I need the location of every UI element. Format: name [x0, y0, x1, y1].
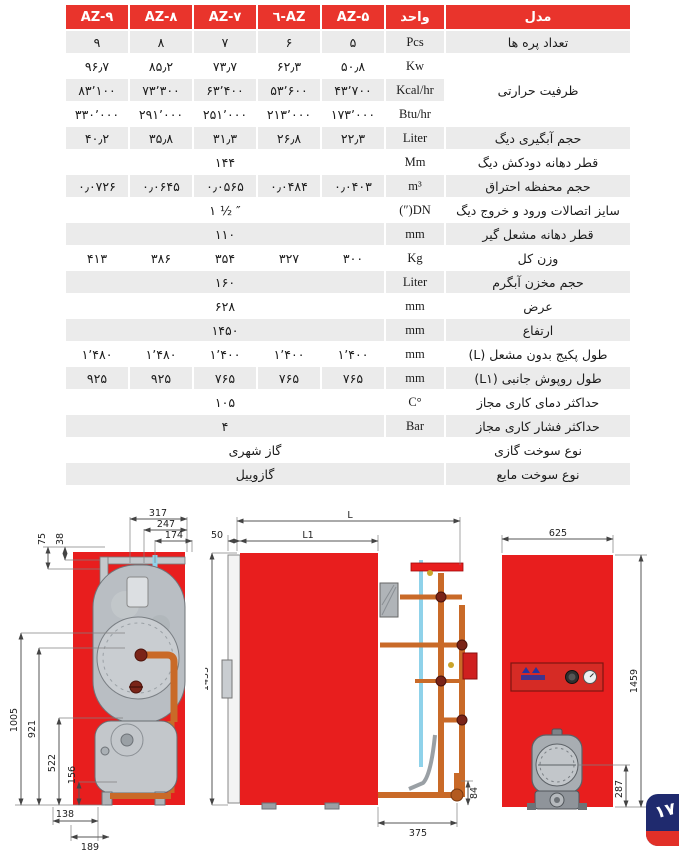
unit-cell: m³ [386, 175, 444, 197]
row-label: تعداد پره ها [446, 31, 630, 53]
dim-label-75: 75 [37, 533, 48, 545]
value-cell: ۷۶۵ [194, 367, 256, 389]
row-fins: تعداد پره ها Pcs ۵ ۶ ۷ ۸ ۹ [66, 31, 630, 53]
unit-cell: Mm [386, 151, 444, 173]
side-tab [222, 660, 232, 698]
unit-cell: Kg [386, 247, 444, 269]
value-cell: ۶ [258, 31, 320, 53]
header-az9: AZ-۹ [66, 5, 128, 29]
unit-cell: mm [386, 343, 444, 365]
row-label: وزن کل [446, 247, 630, 269]
value-cell: ۱٬۴۰۰ [258, 343, 320, 365]
value-cell: ۳۲۷ [258, 247, 320, 269]
value-cell: ۰٫۰۵۶۵ [194, 175, 256, 197]
dim-label-L1: L1 [302, 530, 313, 541]
value-cell: ۰٫۰۶۴۵ [130, 175, 192, 197]
dim-label-156: 156 [67, 766, 78, 784]
dim-label-1459: 1459 [629, 669, 640, 693]
dim-label-375: 375 [409, 828, 427, 839]
merged-value-cell: ۱۴۴ [66, 151, 384, 173]
merged-value-cell: ۴ [66, 415, 384, 437]
row-kw: ظرفیت حرارتی Kw ۵۰٫۸ ۶۲٫۳ ۷۳٫۷ ۸۵٫۲ ۹۶٫۷ [66, 55, 630, 77]
row-label: حداکثر فشار کاری مجاز [446, 415, 630, 437]
value-cell: ۹۲۵ [130, 367, 192, 389]
unit-cell: mm [386, 319, 444, 341]
value-cell: ۱٬۴۰۰ [322, 343, 384, 365]
row-tank-volume: حجم مخزن آبگرم Liter ۱۶۰ [66, 271, 630, 293]
dim-label-921: 921 [27, 720, 38, 738]
value-cell: ۳۰۰ [322, 247, 384, 269]
unit-cell: mm [386, 223, 444, 245]
dim-label-625: 625 [549, 528, 567, 539]
unit-cell: Btu/hr [386, 103, 444, 125]
red-jacket-side [240, 553, 378, 805]
value-cell: ۱۷۳٬۰۰۰ [322, 103, 384, 125]
header-az5: AZ-۵ [322, 5, 384, 29]
value-cell: ۸ [130, 31, 192, 53]
valve [436, 592, 446, 602]
value-cell: ۲۲٫۳ [322, 127, 384, 149]
row-chamber: حجم محفظه احتراق m³ ۰٫۰۴۰۳ ۰٫۰۴۸۴ ۰٫۰۵۶۵… [66, 175, 630, 197]
row-height: ارتفاع mm ۱۴۵۰ [66, 319, 630, 341]
value-cell: ۹ [66, 31, 128, 53]
row-water-volume: حجم آبگیری دیگ Liter ۲۲٫۳ ۲۶٫۸ ۳۱٫۳ ۳۵٫۸… [66, 127, 630, 149]
merged-value-cell: ۱ ½ ″ [66, 199, 384, 221]
unit-cell: mm [386, 295, 444, 317]
row-max-pressure: حداکثر فشار کاری مجاز Bar ۴ [66, 415, 630, 437]
header-az8: AZ-۸ [130, 5, 192, 29]
row-burner-mount: قطر دهانه مشعل گیر mm ۱۱۰ [66, 223, 630, 245]
row-label: طول روپوش جانبی (L۱) [446, 367, 630, 389]
dim-label-38: 38 [55, 533, 66, 545]
value-cell: ۳۳۰٬۰۰۰ [66, 103, 128, 125]
row-liquid-fuel: نوع سوخت مایع گازوییل [66, 463, 630, 485]
value-cell: ۲۶٫۸ [258, 127, 320, 149]
valve [135, 649, 147, 661]
dim-label-247: 247 [157, 519, 175, 530]
row-label: طول پکیج بدون مشعل (L) [446, 343, 630, 365]
page-number-badge: ۱۷ [646, 794, 679, 846]
row-label: نوع سوخت گازی [446, 439, 630, 461]
unit-cell: Kw [386, 55, 444, 77]
burner-port-center [554, 797, 560, 803]
dim-label-50: 50 [211, 530, 223, 541]
dim-label-189: 189 [81, 842, 99, 851]
tank-label-plate [127, 577, 148, 607]
row-label: نوع سوخت مایع [446, 463, 630, 485]
unit-cell: DN(″) [386, 199, 444, 221]
red-top-pipe [411, 563, 463, 571]
header-unit: واحد [386, 5, 444, 29]
value-cell: ۷۳٫۷ [194, 55, 256, 77]
burner-foot [527, 803, 536, 810]
row-label: سایز اتصالات ورود و خروج دیگ [446, 199, 630, 221]
value-cell: ۷۳٬۳۰۰ [130, 79, 192, 101]
value-cell: ۶۲٫۳ [258, 55, 320, 77]
row-length-l1: طول روپوش جانبی (L۱) mm ۷۶۵ ۷۶۵ ۷۶۵ ۹۲۵ … [66, 367, 630, 389]
value-cell: ۵ [322, 31, 384, 53]
unit-cell: Liter [386, 127, 444, 149]
dim-label-L: L [347, 510, 353, 521]
value-cell: ۸۳٬۱۰۰ [66, 79, 128, 101]
merged-value-cell: ۱۰۵ [66, 391, 384, 413]
row-chimney: قطر دهانه دودکش دیگ Mm ۱۴۴ [66, 151, 630, 173]
row-label: عرض [446, 295, 630, 317]
header-row: مدل واحد AZ-۵ AZ-٦ AZ-۷ AZ-۸ AZ-۹ [66, 5, 630, 29]
unit-cell: Bar [386, 415, 444, 437]
row-label: حجم مخزن آبگرم [446, 271, 630, 293]
value-cell: ۱٬۴۸۰ [130, 343, 192, 365]
lower-tank-fitting [101, 747, 109, 755]
value-cell: ۳۵۴ [194, 247, 256, 269]
merged-value-cell: ۱۶۰ [66, 271, 384, 293]
burner-foot [578, 803, 587, 810]
dim-label-317: 317 [149, 508, 167, 519]
page-number: ۱۷ [653, 799, 678, 823]
unit-cell: Liter [386, 271, 444, 293]
dim-label-287: 287 [614, 780, 625, 798]
value-cell: ۷ [194, 31, 256, 53]
drawing-side-view: L L1 50 1433 375 84 [205, 505, 480, 851]
value-cell: ۷۶۵ [322, 367, 384, 389]
row-length-l: طول پکیج بدون مشعل (L) mm ۱٬۴۰۰ ۱٬۴۰۰ ۱٬… [66, 343, 630, 365]
unit-cell: Pcs [386, 31, 444, 53]
row-max-temp: حداکثر دمای کاری مجاز °C ۱۰۵ [66, 391, 630, 413]
row-label: قطر دهانه دودکش دیگ [446, 151, 630, 173]
unit-cell: mm [386, 367, 444, 389]
dim-label-1433: 1433 [205, 667, 211, 691]
value-cell: ۶۳٬۴۰۰ [194, 79, 256, 101]
header-az7: AZ-۷ [194, 5, 256, 29]
row-label-capacity: ظرفیت حرارتی [446, 55, 630, 125]
row-gas-fuel: نوع سوخت گازی گاز شهری [66, 439, 630, 461]
value-cell: ۱٬۴۰۰ [194, 343, 256, 365]
value-cell: ۴۰٫۲ [66, 127, 128, 149]
value-cell: ۴۱۳ [66, 247, 128, 269]
lower-tank-cap [121, 734, 133, 746]
dim-label-138: 138 [56, 809, 74, 820]
row-weight: وزن کل Kg ۳۰۰ ۳۲۷ ۳۵۴ ۳۸۶ ۴۱۳ [66, 247, 630, 269]
dim-label-522: 522 [47, 754, 58, 772]
value-cell: ۲۹۱٬۰۰۰ [130, 103, 192, 125]
unit-cell: °C [386, 391, 444, 413]
value-cell: ۰٫۰۴۰۳ [322, 175, 384, 197]
unit-cell: Kcal/hr [386, 79, 444, 101]
value-cell: ۳۵٫۸ [130, 127, 192, 149]
merged-value-cell: گازوییل [66, 463, 444, 485]
foot [325, 803, 339, 809]
value-cell: ۹۶٫۷ [66, 55, 128, 77]
pipe-elbow [451, 789, 463, 801]
header-az6: AZ-٦ [258, 5, 320, 29]
row-connections: سایز اتصالات ورود و خروج دیگ DN(″) ۱ ½ ″ [66, 199, 630, 221]
value-cell: ۰٫۰۴۸۴ [258, 175, 320, 197]
value-cell: ۳۸۶ [130, 247, 192, 269]
value-cell: ۲۵۱٬۰۰۰ [194, 103, 256, 125]
boiler-spec-table: مدل واحد AZ-۵ AZ-٦ AZ-۷ AZ-۸ AZ-۹ تعداد … [64, 3, 632, 487]
drawing-front-section: 317 247 174 75 38 1005 921 522 156 138 1… [5, 505, 230, 851]
merged-value-cell: ۱۴۵۰ [66, 319, 384, 341]
row-label: حداکثر دمای کاری مجاز [446, 391, 630, 413]
brass-fitting [448, 662, 454, 668]
row-label: ارتفاع [446, 319, 630, 341]
top-pipe [100, 557, 185, 564]
value-cell: ۴۳٬۷۰۰ [322, 79, 384, 101]
value-cell: ۱٬۴۸۰ [66, 343, 128, 365]
dim-label-1005: 1005 [9, 708, 20, 732]
value-cell: ۲۱۳٬۰۰۰ [258, 103, 320, 125]
valve [436, 676, 446, 686]
value-cell: ۵۳٬۶۰۰ [258, 79, 320, 101]
value-cell: ۸۵٫۲ [130, 55, 192, 77]
value-cell: ۷۶۵ [258, 367, 320, 389]
value-cell: ۰٫۰۷۲۶ [66, 175, 128, 197]
dim-label-174: 174 [165, 530, 183, 541]
value-cell: ۵۰٫۸ [322, 55, 384, 77]
merged-value-cell: گاز شهری [66, 439, 444, 461]
header-model: مدل [446, 5, 630, 29]
value-cell: ۳۱٫۳ [194, 127, 256, 149]
brass-fitting [427, 570, 433, 576]
gauge-dark-face [569, 674, 576, 681]
row-label: حجم آبگیری دیگ [446, 127, 630, 149]
valve [457, 640, 467, 650]
row-label: قطر دهانه مشعل گیر [446, 223, 630, 245]
foot [262, 803, 276, 809]
row-width: عرض mm ۶۲۸ [66, 295, 630, 317]
badge-red-band [646, 831, 679, 846]
value-cell: ۹۲۵ [66, 367, 128, 389]
row-label: حجم محفظه احتراق [446, 175, 630, 197]
merged-value-cell: ۶۲۸ [66, 295, 384, 317]
valve [457, 715, 467, 725]
merged-value-cell: ۱۱۰ [66, 223, 384, 245]
